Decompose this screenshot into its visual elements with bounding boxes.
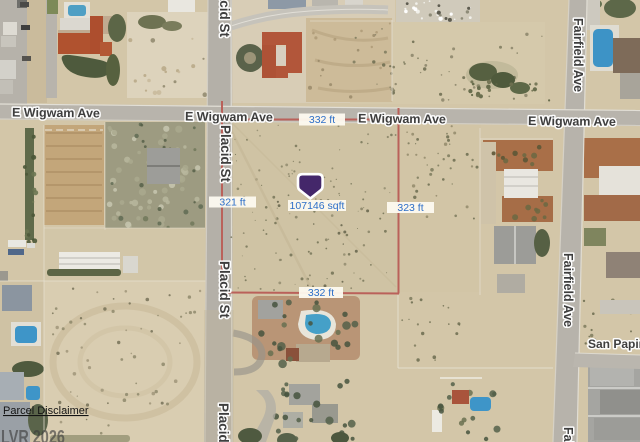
svg-text:Fairfield Ave: Fairfield Ave bbox=[571, 18, 585, 92]
svg-text:E Wigwam Ave: E Wigwam Ave bbox=[185, 110, 273, 125]
svg-text:Placid St: Placid St bbox=[216, 403, 231, 442]
svg-text:Fairfield Ave: Fairfield Ave bbox=[561, 427, 575, 442]
svg-text:323 ft: 323 ft bbox=[397, 202, 423, 214]
svg-text:Parcel Disclaimer: Parcel Disclaimer bbox=[3, 405, 89, 417]
svg-text:Placid St: Placid St bbox=[218, 125, 233, 183]
svg-text:E Wigwam Ave: E Wigwam Ave bbox=[358, 112, 446, 127]
svg-text:107146 sqft: 107146 sqft bbox=[290, 200, 345, 212]
svg-text:Placid St: Placid St bbox=[217, 261, 232, 319]
svg-text:Placid St: Placid St bbox=[217, 0, 232, 38]
svg-text:E Wigwam Ave: E Wigwam Ave bbox=[12, 106, 100, 121]
svg-text:San Papinta: San Papinta bbox=[588, 337, 640, 351]
svg-text:E Wigwam Ave: E Wigwam Ave bbox=[528, 114, 616, 129]
svg-text:321 ft: 321 ft bbox=[219, 197, 245, 209]
svg-text:Fairfield Ave: Fairfield Ave bbox=[561, 253, 575, 327]
svg-text:LVR 2026: LVR 2026 bbox=[1, 425, 65, 442]
svg-text:332 ft: 332 ft bbox=[309, 114, 335, 126]
svg-text:332 ft: 332 ft bbox=[308, 287, 334, 299]
